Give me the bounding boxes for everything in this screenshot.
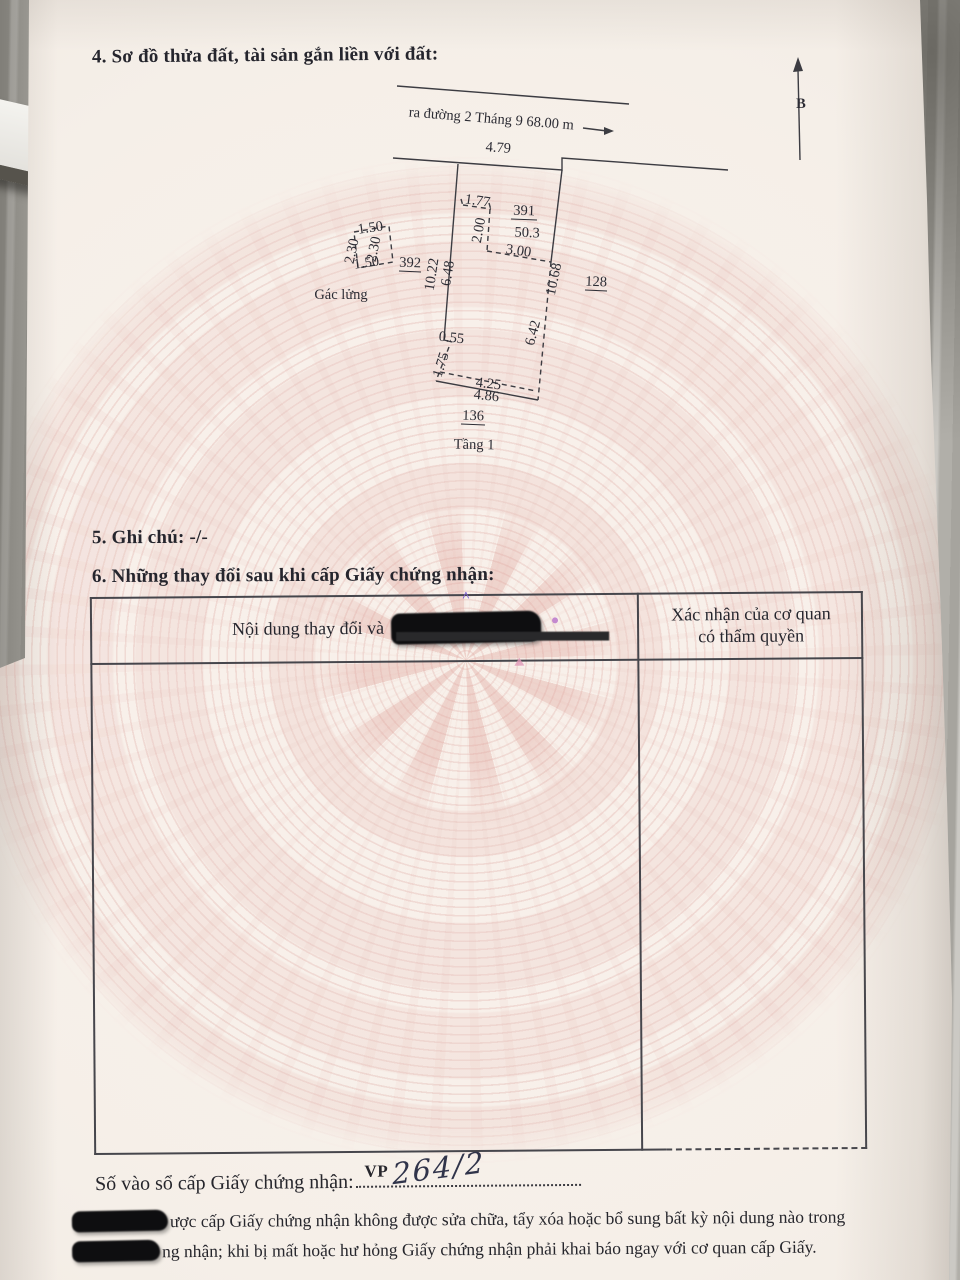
registry-entry-line: Số vào sổ cấp Giấy chứng nhận:VP264/2 [95,1162,581,1196]
dim-inner-right: 6.42 [522,319,544,348]
dim-lower-left: 1.75 [430,350,453,379]
table-border-left [90,597,96,1155]
mezzanine-outline [354,226,393,268]
parcel-left-edge [444,164,458,342]
section5-title: 5. Ghi chú: -/- [92,527,208,550]
table-border-right [861,591,867,1149]
parcel-number: 391 [513,203,535,220]
dim-inner-cross: 3.00 [505,241,532,260]
dashed-ticks [461,199,491,210]
dim-front: 4.79 [485,139,511,157]
notice-line-2: ng nhận; khi bị mất hoặc hư hỏng Giấy ch… [72,1231,888,1267]
north-arrow-line [798,70,800,160]
underline-136 [461,424,485,425]
north-label: B [796,96,806,112]
dim-step: 0.55 [438,329,465,348]
north-arrow-head [793,57,803,72]
mezzanine-label: Gác lửng [314,287,367,303]
changes-table: Nội dung thay đổi và ^ Xác nhận của cơ q… [90,591,867,1155]
dim-left-outer: 10.22 [422,257,443,292]
parcel-right-edge [551,170,562,262]
parcel-bottom-edge [436,381,538,400]
redaction-blob-line2 [72,1240,160,1263]
redaction-blob-line1 [72,1210,168,1233]
neighbor-left: 392 [399,255,421,272]
underline-391 [511,219,537,220]
dim-bottom-inner: 4.25 [475,375,502,394]
neighbor-right: 128 [585,274,607,291]
registry-dotted-line: VP264/2 [355,1162,580,1188]
underline-128 [585,290,607,291]
mezzanine-dim-left: 2.30 [342,237,363,265]
road-arrow-head [604,127,614,135]
table-header-left-cell: Nội dung thay đổi và [90,593,638,663]
redaction-bar [396,632,609,642]
registry-entry-prefix: VP [364,1162,388,1182]
footer-notice: ược cấp Giấy chứng nhận không được sửa c… [72,1201,888,1267]
underline-392 [399,271,421,272]
dashed-inner-walls [463,205,551,262]
registry-entry-label: Số vào sổ cấp Giấy chứng nhận: [95,1171,354,1195]
road-label: ra đường 2 Tháng 9 68.00 m [408,105,575,134]
road-arrow-line [583,128,607,131]
dim-left-inner: 6.48 [438,260,458,288]
mezzanine-dim-top: 1.50 [357,218,384,237]
dashed-lower-left [436,347,449,381]
certificate-page: 4. Sơ đồ thửa đất, tài sản gắn liền với … [0,0,960,1280]
dim-inner-top: 1.77 [464,191,491,210]
dim-bottom: 4.86 [473,387,500,406]
ink-mark-triangle [514,658,524,666]
ink-mark-caret: ^ [462,590,470,606]
table-column-divider [637,593,643,1151]
table-border-bottom-dashed [666,1147,867,1151]
notice-text-1: ược cấp Giấy chứng nhận không được sửa c… [170,1206,845,1231]
section4-title: 4. Sơ đồ thửa đất, tài sản gắn liền với … [92,43,439,68]
ink-mark-dot [552,617,558,623]
notice-text-2: ng nhận; khi bị mất hoặc hư hỏng Giấy ch… [162,1237,817,1262]
dim-inner-vertical: 2.00 [469,216,489,244]
parcel-area: 50.3 [514,225,540,242]
photo-background: 4. Sơ đồ thửa đất, tài sản gắn liền với … [0,0,960,1280]
neighbor-bottom: 136 [462,408,484,425]
dim-right: 10.68 [543,262,565,297]
floor-label: Tầng 1 [454,437,495,454]
table-header-left-label: Nội dung thay đổi và [232,617,384,639]
section6-title: 6. Những thay đổi sau khi cấp Giấy chứng… [92,564,495,588]
dashed-bottom-inner [440,372,536,391]
mezzanine-dim-right: 2.30 [364,235,385,263]
dashed-right-wall [538,262,551,400]
table-border-bottom [94,1149,666,1155]
table-header-right-line2: có thẩm quyền [698,624,804,647]
table-header-right-line1: Xác nhận của cơ quan [671,602,831,625]
mezzanine-dim-bottom: 1.50 [353,253,380,272]
table-header-right-cell: Xác nhận của cơ quan có thẩm quyền [639,591,864,659]
road-line [397,86,629,104]
front-boundary-line [393,158,728,170]
